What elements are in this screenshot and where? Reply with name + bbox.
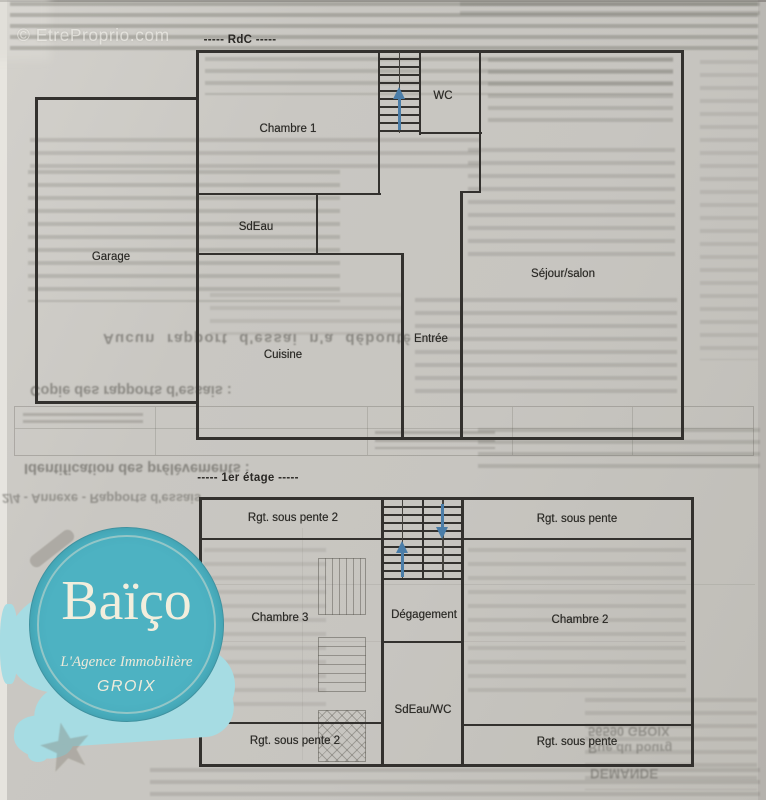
- wall: [316, 193, 318, 255]
- bleed-paragraph: [460, 2, 760, 20]
- room-label-chambre2: Chambre 2: [552, 614, 609, 628]
- room-label-rgt-sous-pente-bas: Rgt. sous pente: [537, 736, 618, 750]
- wall: [35, 401, 199, 404]
- stairs-arrow-shaft: [441, 504, 444, 529]
- logo-circle: Baïço L'Agence Immobilière GROIX: [29, 527, 224, 722]
- wall: [196, 50, 199, 440]
- wall: [461, 724, 693, 726]
- etreproprio-watermark: © EtreProprio.com: [17, 25, 170, 46]
- wall: [681, 50, 684, 440]
- wall: [460, 191, 463, 439]
- wall: [401, 253, 404, 439]
- wall: [35, 97, 38, 404]
- wall: [35, 97, 198, 100]
- wall: [479, 50, 481, 193]
- bleed-table-col-line: [367, 407, 368, 455]
- wall: [460, 191, 481, 193]
- starfish-icon: [35, 717, 97, 779]
- stairs-arrow-shaft: [398, 97, 401, 130]
- room-label-chambre1: Chambre 1: [260, 123, 317, 137]
- agency-logo: Baïço L'Agence Immobilière GROIX: [0, 515, 260, 800]
- wall: [196, 253, 403, 255]
- room-label-cuisine: Cuisine: [264, 349, 302, 363]
- room-label-rgt-sous-pente-2-haut: Rgt. sous pente 2: [248, 512, 338, 526]
- room-label-garage: Garage: [92, 251, 130, 265]
- bleed-table-text: [375, 431, 495, 449]
- stairs-arrow-shaft: [401, 552, 404, 577]
- bleed-paragraph: [700, 60, 758, 360]
- bleed-table-text: [23, 413, 143, 427]
- bleed-paragraph: [488, 58, 673, 126]
- bleedthrough-text: Aucun rapport d'essai n'a débouté: [103, 330, 618, 347]
- bleed-paragraph: [30, 138, 480, 168]
- wall: [419, 132, 482, 134]
- wall: [196, 50, 684, 53]
- wall: [199, 764, 694, 767]
- room-label-sdeau-wc: SdEau/WC: [395, 704, 452, 718]
- bleed-paragraph: [28, 170, 340, 302]
- wall: [381, 641, 463, 643]
- wall: [196, 437, 684, 440]
- logo-brand-text: Baïço: [30, 573, 223, 629]
- floor-title-rdc: ----- RdC -----: [204, 34, 277, 46]
- wall: [462, 538, 693, 540]
- room-label-sdeau: SdEau: [239, 221, 274, 235]
- room-label-entree: Entrée: [414, 333, 448, 347]
- bleed-paragraph: [210, 293, 402, 335]
- logo-splash: [0, 604, 18, 684]
- room-label-rgt-sous-pente-2-bas: Rgt. sous pente 2: [250, 735, 340, 749]
- bleed-paragraph: [468, 148, 675, 263]
- right-paper-shadow: [758, 0, 766, 800]
- bleed-table-col-line: [155, 407, 156, 455]
- wall: [419, 50, 421, 135]
- room-label-rgt-sous-pente-haut: Rgt. sous pente: [537, 513, 618, 527]
- scanned-floorplan-page: Aucun rapport d'essai n'a débouté Copie …: [0, 0, 766, 800]
- room-label-sejour: Séjour/salon: [531, 268, 595, 282]
- wall: [196, 193, 381, 195]
- room-label-degagement: Dégagement: [391, 609, 457, 623]
- staircase-treads: [383, 500, 461, 578]
- bleed-paragraph: [478, 428, 760, 476]
- room-label-wc: WC: [433, 90, 452, 104]
- logo-tagline-text: L'Agence Immobilière: [30, 654, 223, 671]
- bleedthrough-text: DEMANDE: [590, 766, 658, 781]
- bleedthrough-text: Copie des rapports d'essais :: [30, 382, 232, 398]
- room-label-chambre3: Chambre 3: [252, 612, 309, 626]
- floor-title-etage1: ----- 1er étage -----: [197, 472, 299, 484]
- closet-hatch-vertical: [318, 558, 366, 615]
- wall: [381, 578, 463, 580]
- logo-city-text: GROIX: [30, 678, 223, 696]
- closet-hatch-horizontal: [318, 637, 366, 692]
- bleedthrough-text: 2/4 - Annexe - Rapports d'essais: [2, 491, 201, 506]
